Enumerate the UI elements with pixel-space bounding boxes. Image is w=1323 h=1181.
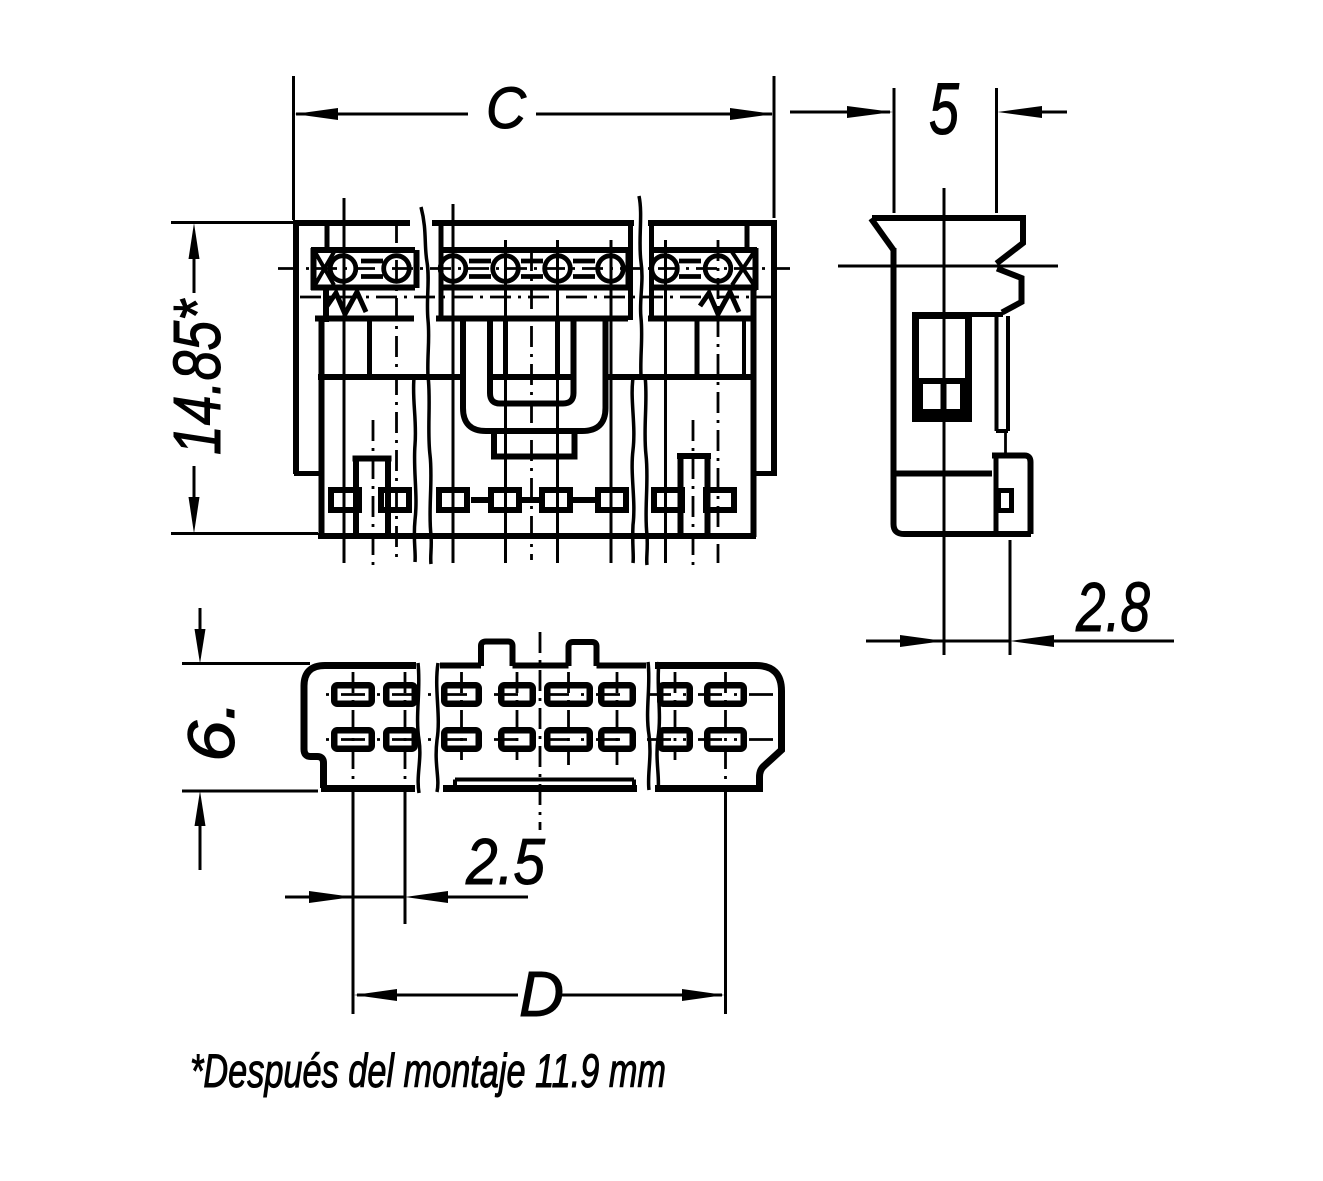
svg-text:C: C (486, 76, 527, 141)
svg-text:2.5: 2.5 (465, 825, 546, 898)
svg-text:D: D (519, 958, 564, 1030)
svg-text:6.: 6. (174, 700, 248, 762)
svg-text:2.8: 2.8 (1075, 568, 1150, 646)
svg-text:*Después del montaje 11.9 mm: *Después del montaje 11.9 mm (190, 1044, 666, 1097)
svg-text:14.85*: 14.85* (160, 298, 235, 455)
svg-text:5: 5 (929, 69, 959, 150)
